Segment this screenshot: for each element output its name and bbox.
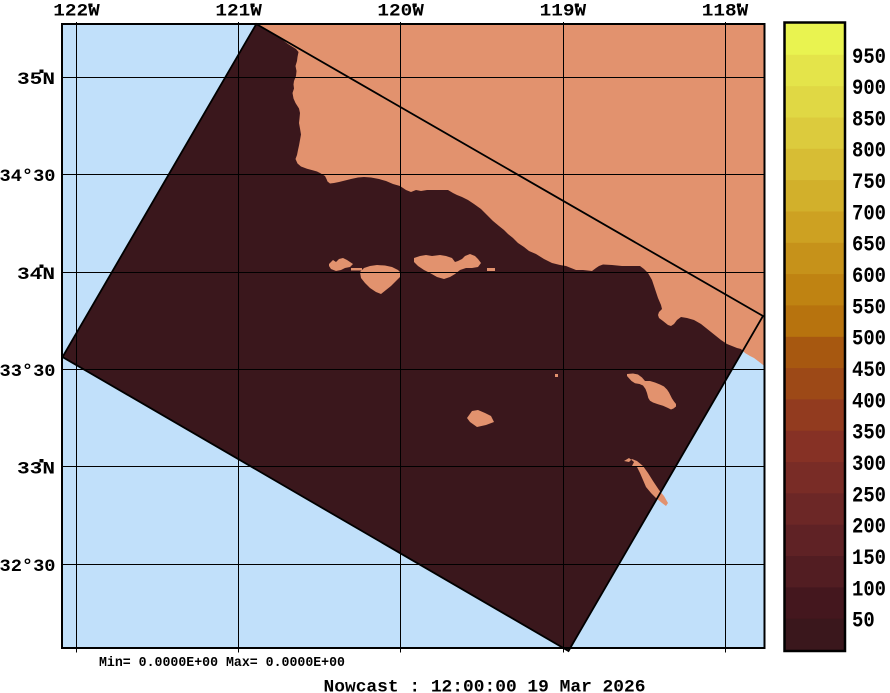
svg-text:34°30: 34°30 <box>0 167 56 187</box>
svg-text:Min= 0.0000E+00 Max= 0.0000E+: Min= 0.0000E+00 Max= 0.0000E+00 <box>99 655 345 671</box>
svg-text:550: 550 <box>852 295 886 320</box>
svg-text:122W: 122W <box>53 2 100 22</box>
svg-text:400: 400 <box>852 389 886 414</box>
svg-text:350: 350 <box>852 421 886 446</box>
svg-text:650: 650 <box>852 233 886 258</box>
svg-text:33°30: 33°30 <box>0 362 56 382</box>
svg-text:Nowcast : 12:00:00 19 Mar 202: Nowcast : 12:00:00 19 Mar 2026 <box>324 678 646 693</box>
svg-text:250: 250 <box>852 483 886 508</box>
svg-text:35N: 35N <box>17 70 55 90</box>
svg-text:950: 950 <box>852 45 886 70</box>
svg-text:50: 50 <box>852 609 875 634</box>
svg-text:119W: 119W <box>540 2 587 22</box>
svg-text:450: 450 <box>852 358 886 383</box>
svg-text:750: 750 <box>852 170 886 195</box>
svg-text:600: 600 <box>852 264 886 289</box>
svg-text:900: 900 <box>852 76 886 101</box>
svg-text:120W: 120W <box>377 2 424 22</box>
svg-text:800: 800 <box>852 139 886 164</box>
svg-text:150: 150 <box>852 546 886 571</box>
svg-text:100: 100 <box>852 577 886 602</box>
svg-text:118W: 118W <box>702 2 749 22</box>
svg-text:500: 500 <box>852 327 886 352</box>
svg-text:34N: 34N <box>17 265 55 285</box>
svg-text:850: 850 <box>852 107 886 132</box>
svg-text:200: 200 <box>852 515 886 540</box>
svg-text:32°30: 32°30 <box>0 557 56 577</box>
svg-text:121W: 121W <box>215 2 262 22</box>
svg-text:33N: 33N <box>17 460 55 480</box>
svg-text:700: 700 <box>852 201 886 226</box>
svg-text:300: 300 <box>852 452 886 477</box>
